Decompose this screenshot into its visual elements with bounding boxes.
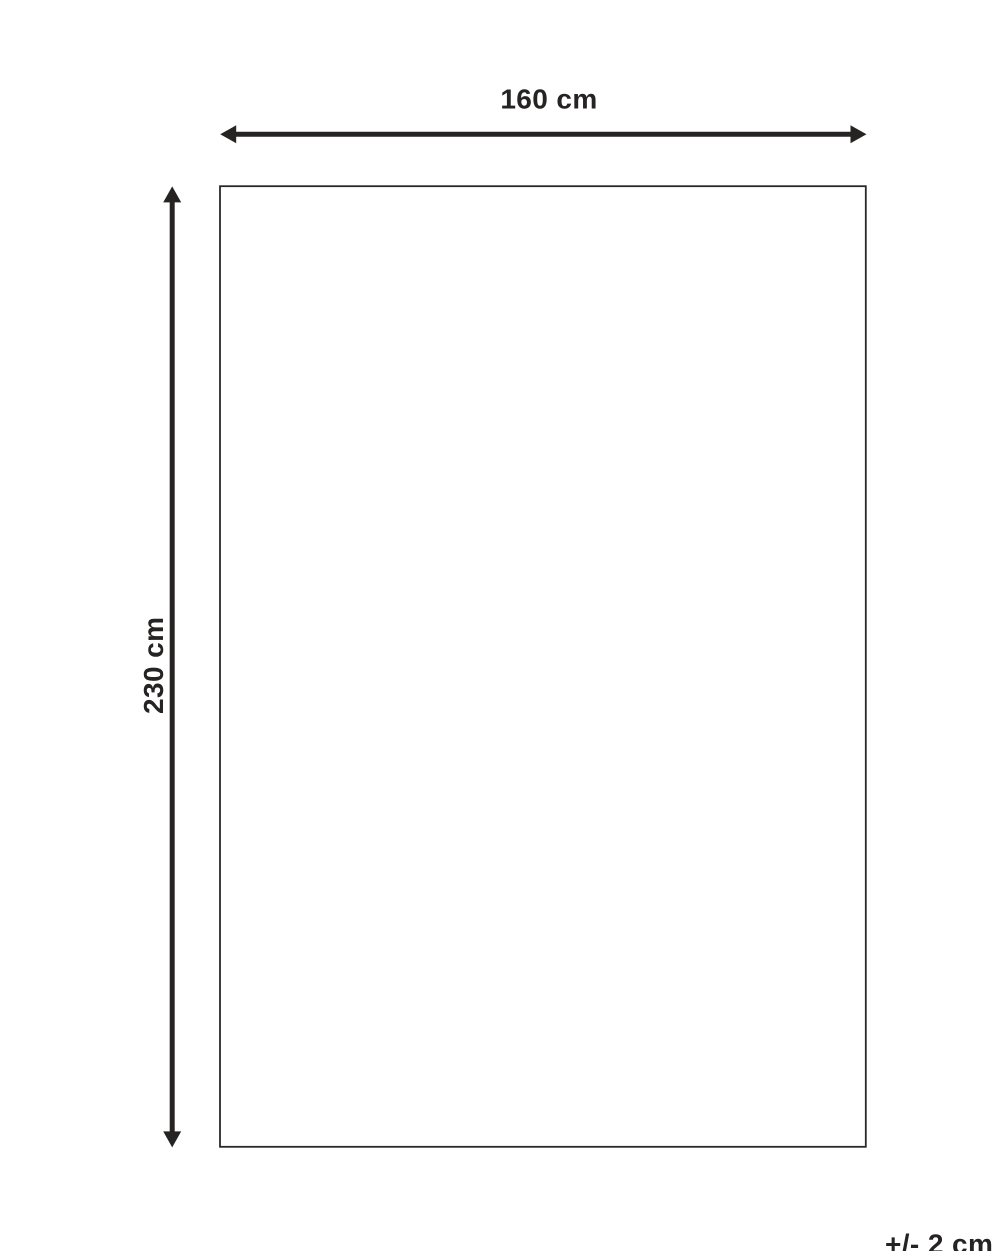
svg-text:160 cm: 160 cm	[500, 84, 597, 115]
svg-text:+/- 2 cm: +/- 2 cm	[885, 1229, 993, 1251]
svg-text:230 cm: 230 cm	[138, 617, 169, 714]
